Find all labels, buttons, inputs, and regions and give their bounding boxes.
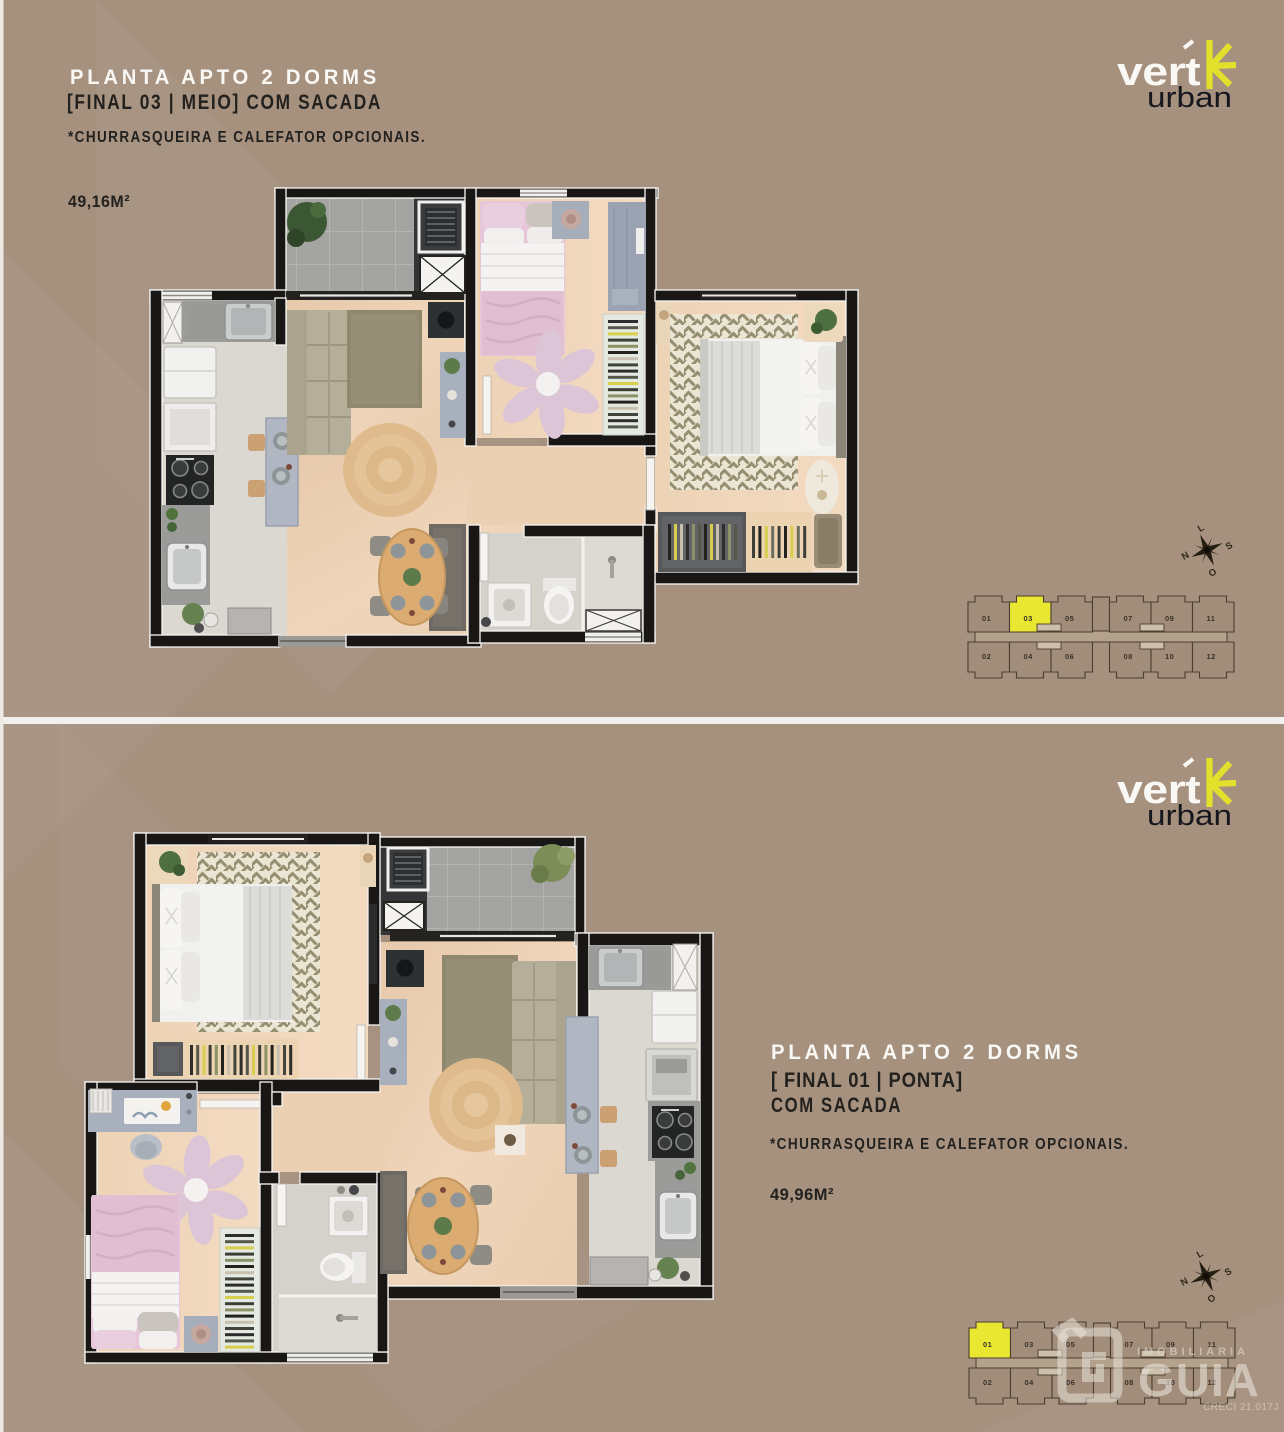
svg-text:02: 02 [983, 1378, 992, 1387]
svg-text:07: 07 [1125, 1340, 1134, 1349]
svg-text:03: 03 [1024, 614, 1033, 623]
svg-text:GUIA: GUIA [1138, 1354, 1260, 1406]
svg-text:10: 10 [1165, 652, 1174, 661]
svg-text:05: 05 [1066, 1340, 1075, 1349]
svg-text:COM SACADA: COM SACADA [771, 1094, 902, 1117]
svg-text:*CHURRASQUEIRA E CALEFATOR OPC: *CHURRASQUEIRA E CALEFATOR OPCIONAIS. [770, 1136, 1129, 1153]
svg-text:CRECI 21.017J: CRECI 21.017J [1203, 1402, 1279, 1413]
svg-text:06: 06 [1065, 652, 1074, 661]
svg-text:05: 05 [1065, 614, 1074, 623]
svg-text:09: 09 [1165, 614, 1174, 623]
svg-text:07: 07 [1124, 614, 1133, 623]
svg-text:[FINAL 03 | MEIO] COM SACADA: [FINAL 03 | MEIO] COM SACADA [67, 91, 382, 114]
svg-text:urban: urban [1147, 82, 1232, 114]
svg-text:04: 04 [1025, 1378, 1035, 1387]
svg-text:03: 03 [1025, 1340, 1034, 1349]
svg-text:*CHURRASQUEIRA E CALEFATOR OPC: *CHURRASQUEIRA E CALEFATOR OPCIONAIS. [68, 129, 426, 146]
svg-text:04: 04 [1024, 652, 1034, 661]
svg-text:02: 02 [982, 652, 991, 661]
svg-text:11: 11 [1207, 614, 1216, 623]
svg-text:PLANTA APTO 2 DORMS: PLANTA APTO 2 DORMS [771, 1040, 1082, 1064]
svg-text:49,16M²: 49,16M² [68, 193, 130, 211]
svg-text:[ FINAL 01 | PONTA]: [ FINAL 01 | PONTA] [771, 1069, 963, 1092]
svg-text:urban: urban [1147, 800, 1232, 832]
svg-text:12: 12 [1207, 652, 1216, 661]
svg-text:49,96M²: 49,96M² [770, 1186, 834, 1204]
svg-text:01: 01 [983, 1340, 992, 1349]
svg-text:01: 01 [982, 614, 991, 623]
svg-text:PLANTA APTO 2 DORMS: PLANTA APTO 2 DORMS [70, 65, 380, 89]
svg-text:08: 08 [1124, 652, 1133, 661]
svg-text:08: 08 [1125, 1378, 1134, 1387]
svg-text:06: 06 [1066, 1378, 1075, 1387]
